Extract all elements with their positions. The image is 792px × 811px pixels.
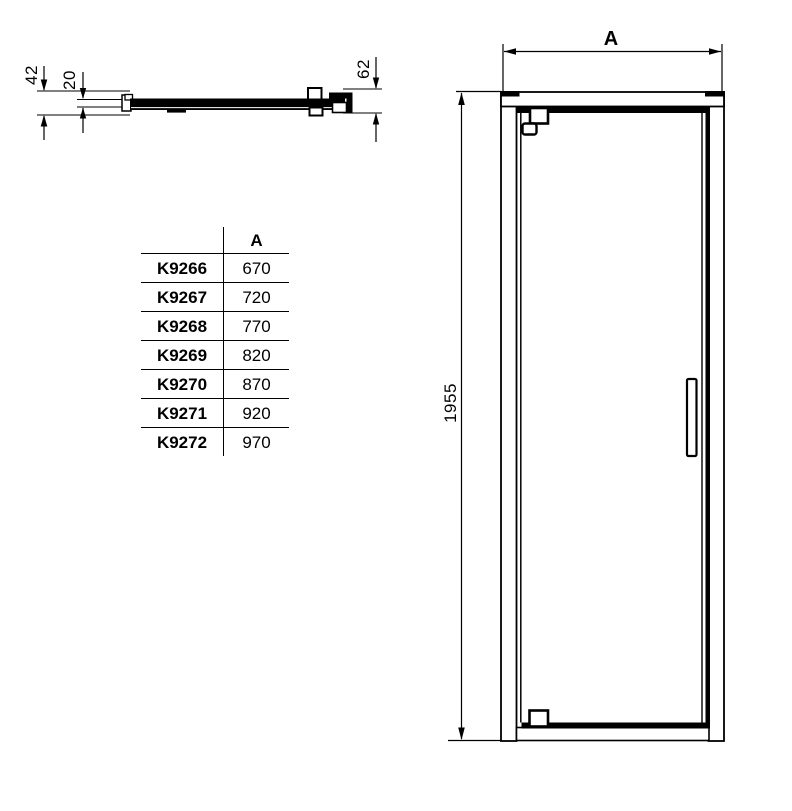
dimension-42-label: 42 bbox=[22, 65, 41, 85]
product-code: K9270 bbox=[141, 370, 224, 399]
technical-drawing-page: 42 20 bbox=[0, 0, 792, 811]
width-value: 920 bbox=[224, 399, 290, 428]
table-row: K9270 870 bbox=[141, 370, 289, 399]
table-row: K9269 820 bbox=[141, 341, 289, 370]
product-code: K9267 bbox=[141, 283, 224, 312]
product-code: K9272 bbox=[141, 428, 224, 457]
size-table-header-code bbox=[141, 227, 224, 254]
size-table-header-a: A bbox=[224, 227, 290, 254]
size-table-header-row: A bbox=[141, 227, 289, 254]
table-row: K9271 920 bbox=[141, 399, 289, 428]
table-row: K9266 670 bbox=[141, 254, 289, 283]
frame-bottom-sill bbox=[517, 728, 710, 741]
arrowhead bbox=[373, 113, 379, 125]
dimension-width-label: A bbox=[604, 28, 618, 50]
door-front-view: A 1955 bbox=[441, 28, 725, 741]
frame-cap-right bbox=[705, 91, 725, 97]
drawing-canvas: 42 20 bbox=[0, 0, 792, 811]
table-row: K9272 970 bbox=[141, 428, 289, 457]
hinge-top bbox=[530, 108, 548, 124]
dimension-20: 20 bbox=[60, 70, 124, 133]
width-value: 720 bbox=[224, 283, 290, 312]
size-table: A K9266 670 K9267 720 K9268 770 K9269 82… bbox=[141, 227, 289, 456]
width-value: 820 bbox=[224, 341, 290, 370]
width-value: 770 bbox=[224, 312, 290, 341]
profile-body bbox=[122, 88, 353, 116]
dimension-height-1955: 1955 bbox=[441, 92, 501, 741]
hinge-top-pivot bbox=[523, 124, 537, 135]
hinge-bottom bbox=[530, 711, 549, 727]
panel-bottom-bar bbox=[522, 723, 710, 729]
arrowhead bbox=[41, 80, 48, 92]
arrowhead bbox=[41, 115, 48, 127]
frame-right-post bbox=[709, 92, 725, 741]
profile-section-view: 42 20 bbox=[22, 57, 382, 142]
profile-handle-section bbox=[167, 110, 186, 113]
profile-clip-vertical bbox=[347, 93, 353, 114]
panel-seal-strip bbox=[706, 107, 711, 729]
product-code: K9271 bbox=[141, 399, 224, 428]
profile-block-bottom bbox=[310, 108, 323, 116]
arrowhead bbox=[504, 48, 516, 55]
door-handle bbox=[687, 379, 697, 456]
arrowhead bbox=[458, 728, 465, 741]
arrowhead bbox=[709, 48, 721, 55]
width-value: 870 bbox=[224, 370, 290, 399]
product-code: K9269 bbox=[141, 341, 224, 370]
dimension-20-label: 20 bbox=[60, 70, 79, 90]
frame-left-post bbox=[501, 92, 517, 741]
table-row: K9268 770 bbox=[141, 312, 289, 341]
frame-top-rail bbox=[501, 92, 724, 107]
arrowhead bbox=[373, 78, 379, 90]
width-value: 970 bbox=[224, 428, 290, 457]
dimension-height-label: 1955 bbox=[441, 383, 460, 423]
frame-cap-left bbox=[501, 91, 520, 97]
door-panel bbox=[517, 107, 711, 729]
arrowhead bbox=[458, 93, 465, 106]
product-code: K9268 bbox=[141, 312, 224, 341]
table-row: K9267 720 bbox=[141, 283, 289, 312]
arrowhead bbox=[80, 108, 86, 119]
width-value: 670 bbox=[224, 254, 290, 283]
product-code: K9266 bbox=[141, 254, 224, 283]
profile-clip-inner bbox=[333, 103, 347, 113]
arrowhead bbox=[80, 88, 86, 99]
profile-block-top bbox=[308, 88, 322, 100]
dimension-width-A: A bbox=[503, 28, 722, 91]
dimension-62-label: 62 bbox=[354, 59, 373, 79]
